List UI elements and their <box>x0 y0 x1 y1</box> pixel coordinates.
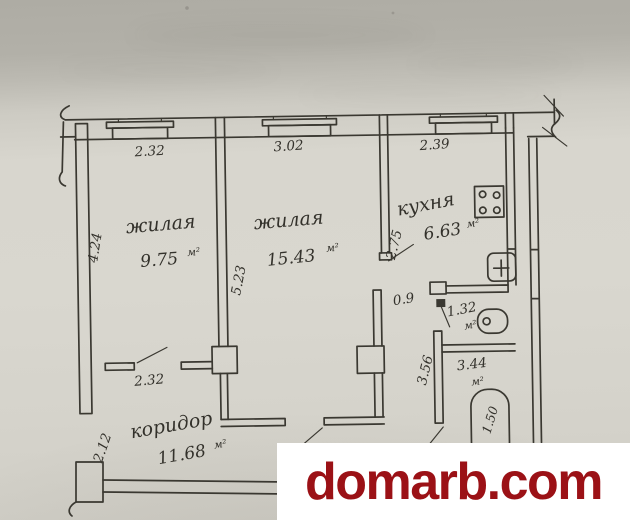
dim-tub-length: 1.50 <box>479 404 502 435</box>
room1-door-swing <box>137 347 167 362</box>
room-unit-corridor: м² <box>213 438 228 452</box>
outer-wall-right <box>529 138 542 442</box>
dim-room1-depth: 4.24 <box>85 232 106 265</box>
floorplan-drawing: 2.32 3.02 2.39 жилая 9.75 м² 4.24 жилая … <box>0 0 630 520</box>
dim-room1-door: 2.32 <box>133 371 165 390</box>
room-unit-living1: м² <box>187 246 201 259</box>
wall-break-squiggle <box>551 110 560 137</box>
corridor-wall-stub-left <box>181 362 212 369</box>
dim-kitchen-door: 0.9 <box>392 290 416 309</box>
dim-window-2: 3.02 <box>273 137 304 155</box>
room-area-living2: 15.43 <box>266 246 316 271</box>
room1-room2-wall <box>216 137 228 346</box>
toilet-icon <box>477 309 507 333</box>
room2-lower-left-wall <box>220 373 228 419</box>
room-unit-kitchen: м² <box>466 217 481 231</box>
watermark-text: domarb.com <box>305 452 602 512</box>
wall-pier-1 <box>212 346 237 373</box>
dim-window-1: 2.32 <box>133 143 165 161</box>
dim-room2-depth: 5.23 <box>228 264 249 297</box>
hall-wall-upper <box>373 290 382 346</box>
dim-corridor-depth: 2.12 <box>90 431 115 466</box>
room-label-kitchen: кухня <box>395 188 456 221</box>
scanned-floorplan-photo: 2.32 3.02 2.39 жилая 9.75 м² 4.24 жилая … <box>0 0 630 520</box>
wall-break-curl <box>69 502 76 516</box>
room2-bottom-wall-left <box>221 418 285 426</box>
room-area-kitchen: 6.63 <box>422 219 462 245</box>
wall-pier-2 <box>357 346 384 373</box>
kitchen-bottom-wall <box>446 285 508 293</box>
room-area-living1: 9.75 <box>140 249 179 272</box>
window-2-frame <box>268 125 330 137</box>
sink-icon <box>488 253 516 281</box>
room1-left-wall <box>75 124 92 414</box>
room-label-living2: жилая <box>253 206 324 234</box>
kitchen-right-wall <box>506 128 516 285</box>
hall-wall-lower <box>374 373 383 417</box>
dim-bath-depth: 3.56 <box>414 353 437 386</box>
room-unit-living2: м² <box>326 242 340 255</box>
room1-bottom-wall <box>105 363 134 370</box>
room2-bottom-wall-right <box>324 417 384 425</box>
room-area-corridor: 11.68 <box>156 441 208 469</box>
dim-window-3: 2.39 <box>418 136 450 154</box>
window-3-frame <box>435 122 491 134</box>
room-label-corridor: коридор <box>129 407 214 443</box>
wc-door-pivot <box>436 299 445 307</box>
dim-kitchen-depth: 2.75 <box>383 228 406 262</box>
watermark: domarb.com <box>277 443 630 520</box>
wc-bath-divider <box>442 344 515 352</box>
paper-speck <box>185 6 189 10</box>
wc-door-jamb <box>430 282 446 294</box>
paper-speck <box>392 12 395 15</box>
room-area-wc: 1.32 <box>445 299 478 320</box>
outer-wall-left <box>59 122 66 186</box>
room-label-living1: жилая <box>125 210 196 238</box>
room-area-bath: 3.44 <box>456 355 488 374</box>
entrance-pier <box>76 462 103 502</box>
room-unit-wc: м² <box>463 318 478 332</box>
room-unit-bath: м² <box>471 375 485 388</box>
window-1-frame <box>113 127 168 139</box>
stove-icon <box>474 186 503 217</box>
